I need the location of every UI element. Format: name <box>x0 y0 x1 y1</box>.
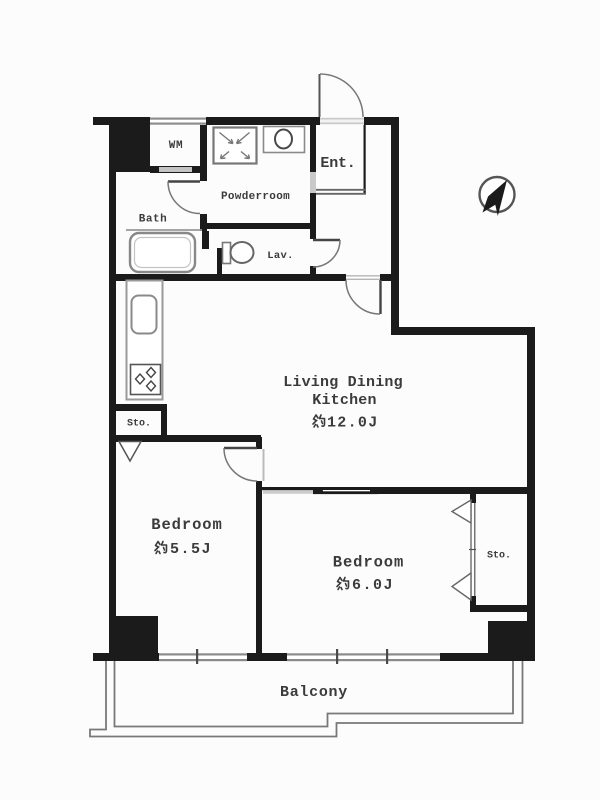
svg-text:Lav.: Lav. <box>267 250 293 262</box>
svg-text:12.0J: 12.0J <box>327 415 379 432</box>
svg-text:Sto.: Sto. <box>487 551 511 562</box>
svg-text:Kitchen: Kitchen <box>312 392 376 409</box>
svg-text:6.0J: 6.0J <box>352 577 394 594</box>
svg-text:5.5J: 5.5J <box>170 541 212 558</box>
svg-text:Bath: Bath <box>139 214 167 226</box>
svg-text:WM: WM <box>169 140 183 152</box>
svg-text:Ent.: Ent. <box>320 155 355 172</box>
svg-text:Bedroom: Bedroom <box>151 516 222 534</box>
svg-text:Living Dining: Living Dining <box>283 374 403 391</box>
svg-text:Sto.: Sto. <box>127 419 151 430</box>
svg-text:Bedroom: Bedroom <box>333 554 404 572</box>
svg-text:Powderroom: Powderroom <box>221 191 290 203</box>
svg-text:Balcony: Balcony <box>280 684 348 701</box>
